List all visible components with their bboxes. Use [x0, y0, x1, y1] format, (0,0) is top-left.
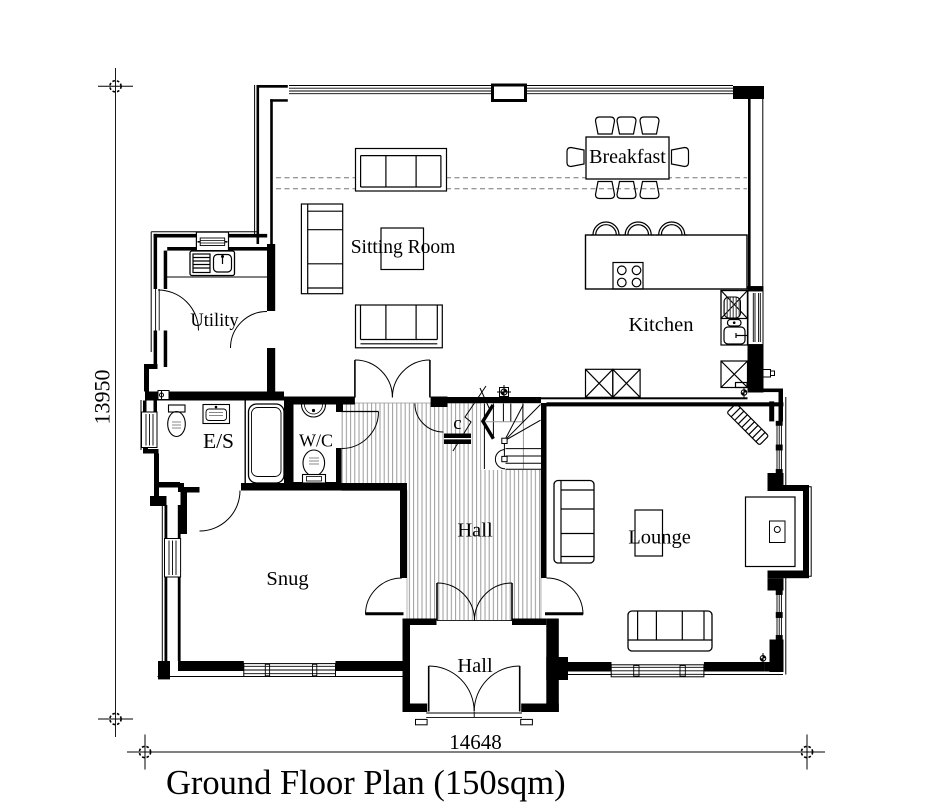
- svg-text:14648: 14648: [449, 730, 502, 754]
- svg-text:Hall: Hall: [457, 520, 493, 542]
- svg-text:Sitting Room: Sitting Room: [351, 237, 456, 258]
- svg-text:E/S: E/S: [203, 429, 234, 453]
- svg-text:Kitchen: Kitchen: [629, 314, 694, 336]
- svg-text:Lounge: Lounge: [628, 527, 691, 549]
- svg-text:Snug: Snug: [266, 568, 308, 590]
- svg-text:Breakfast: Breakfast: [589, 146, 666, 168]
- svg-text:W/C: W/C: [299, 431, 333, 451]
- svg-text:c: c: [453, 413, 461, 434]
- svg-text:Ground Floor Plan (150sqm): Ground Floor Plan (150sqm): [166, 764, 566, 802]
- svg-text:Utility: Utility: [190, 311, 239, 331]
- svg-text:13950: 13950: [90, 370, 115, 425]
- svg-text:Hall: Hall: [457, 655, 493, 677]
